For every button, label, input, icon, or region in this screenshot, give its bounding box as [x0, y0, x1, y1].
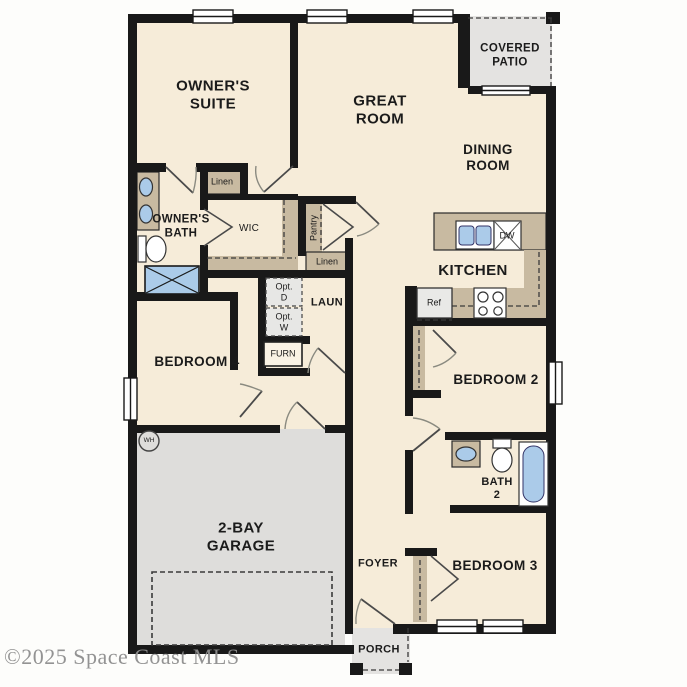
- optional-washer-label: Opt. W: [275, 311, 292, 332]
- garage-label: 2-BAY GARAGE: [207, 519, 275, 554]
- porch-label: PORCH: [358, 644, 400, 657]
- refrigerator-label: Ref: [427, 298, 441, 309]
- wic-label: WIC: [239, 223, 259, 235]
- range-stove: [474, 288, 506, 318]
- dining-room-label: DINING ROOM: [463, 142, 513, 174]
- kitchen-side-counter: [524, 250, 546, 288]
- vanity-sink: [140, 205, 153, 223]
- bath2-label: BATH 2: [481, 476, 512, 502]
- owners-suite-label: OWNER'S SUITE: [176, 77, 250, 112]
- linen-lower-label: Linen: [316, 257, 338, 268]
- owners-bath-label: OWNER'S BATH: [152, 213, 209, 240]
- laundry-label: LAUN: [311, 297, 343, 310]
- vanity-sink: [140, 178, 153, 196]
- kitchen-label: KITCHEN: [438, 262, 507, 280]
- bathtub: [519, 442, 548, 506]
- bedroom3-label: BEDROOM 3: [452, 558, 537, 574]
- linen-upper-label: Linen: [211, 177, 233, 188]
- great-room-label: GREAT ROOM: [353, 92, 406, 127]
- floor-plan-drawing: [0, 0, 687, 687]
- mls-watermark: ©2025 Space Coast MLS: [4, 644, 240, 670]
- foyer-label: FOYER: [358, 558, 398, 571]
- bedroom4-label: BEDROOM 4: [154, 354, 239, 370]
- covered-patio-label: COVERED PATIO: [480, 42, 540, 69]
- kitchen-sink: [456, 221, 494, 249]
- furnace-label: FURN: [271, 349, 296, 360]
- dishwasher-label: DW: [500, 231, 515, 242]
- bath2-toilet: [492, 439, 512, 472]
- bath2-sink: [456, 447, 476, 461]
- optional-dryer-label: Opt. D: [275, 281, 292, 302]
- water-heater-label: WH: [144, 437, 155, 445]
- floor-plan: OWNER'S SUITE GREAT ROOM COVERED PATIO D…: [0, 0, 687, 687]
- pantry-label: Pantry: [309, 215, 320, 241]
- bedroom2-label: BEDROOM 2: [453, 372, 538, 388]
- shower: [145, 266, 199, 294]
- floor-regions: [132, 16, 552, 674]
